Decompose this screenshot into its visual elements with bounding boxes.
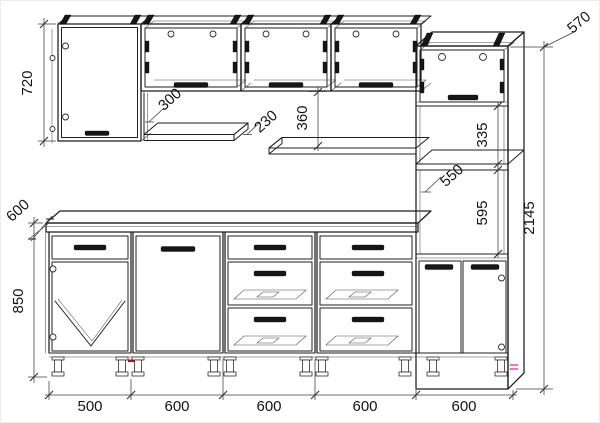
kitchen-elevation-drawing: 720 300 230 360 570 335 550 595 bbox=[1, 1, 600, 423]
drawer-handle bbox=[352, 271, 384, 276]
hinge-cup-icon bbox=[480, 54, 487, 61]
dim-base-height-value: 850 bbox=[10, 288, 27, 313]
drawing-canvas: 720 300 230 360 570 335 550 595 bbox=[0, 0, 600, 423]
wall-shelf-short bbox=[144, 123, 248, 141]
mounting-bracket-icon bbox=[60, 15, 71, 24]
dimension-apron-height: 360 bbox=[294, 87, 326, 151]
cabinet-door bbox=[419, 261, 461, 353]
dim-wall-height-value: 720 bbox=[19, 70, 36, 95]
dim-oven-niche-value: 595 bbox=[474, 200, 491, 225]
dim-apron-height-value: 360 bbox=[294, 105, 311, 130]
worktop bbox=[46, 211, 431, 232]
dim-width-1-value: 500 bbox=[77, 398, 102, 415]
drawer-front bbox=[228, 262, 312, 305]
dim-width-5-value: 600 bbox=[451, 398, 476, 415]
drawer-handle bbox=[254, 271, 286, 276]
dim-shelf-depth-value: 230 bbox=[251, 107, 281, 136]
hinge-cup-icon bbox=[393, 31, 399, 37]
wall-cabinet-flip-2 bbox=[241, 15, 341, 91]
dimension-unit-widths: 500 600 600 600 600 bbox=[45, 359, 517, 415]
tall-cabinet bbox=[416, 32, 524, 389]
flip-door-opening bbox=[420, 50, 504, 102]
door-handle bbox=[85, 131, 109, 136]
hinge-icon bbox=[499, 344, 505, 350]
cabinet-door bbox=[463, 261, 506, 353]
dimension-worktop-depth: 600 bbox=[3, 196, 54, 241]
wall-cabinet-left bbox=[50, 15, 151, 143]
door-handle bbox=[471, 265, 499, 270]
base-cabinet-drawers-2 bbox=[317, 232, 416, 353]
dimension-upper-niche-height: 335 bbox=[474, 102, 502, 168]
shelf-pin-hole bbox=[50, 127, 55, 132]
cabinet-door bbox=[136, 236, 220, 351]
dim-total-height-value: 2145 bbox=[521, 201, 538, 234]
door-handle bbox=[425, 265, 453, 270]
base-cabinet-drawers-1 bbox=[225, 232, 315, 353]
dim-wall-depth-value: 300 bbox=[155, 85, 185, 114]
drawer-handle bbox=[254, 245, 286, 250]
hinge-icon bbox=[50, 266, 56, 272]
drawer-handle bbox=[352, 245, 384, 250]
dimension-total-height: 2145 bbox=[516, 41, 553, 395]
drawer-handle bbox=[352, 317, 384, 322]
dim-tall-depth-value: 570 bbox=[564, 8, 594, 37]
hinge-icon bbox=[63, 114, 69, 120]
dimension-oven-niche-height: 595 bbox=[474, 166, 502, 258]
base-cabinet-2 bbox=[133, 232, 223, 353]
dim-niche-width-value: 550 bbox=[437, 161, 467, 190]
door-handle bbox=[174, 83, 208, 88]
hinge-cup-icon bbox=[263, 31, 269, 37]
door-handle bbox=[359, 83, 393, 88]
hinge-cup-icon bbox=[210, 31, 216, 37]
hinge-icon bbox=[50, 334, 56, 340]
dim-width-4-value: 600 bbox=[352, 398, 377, 415]
hinge-icon bbox=[499, 275, 505, 281]
dim-worktop-depth-value: 600 bbox=[3, 196, 33, 225]
wall-cabinet-left-door bbox=[62, 28, 138, 138]
wall-cabinet-flip-1 bbox=[141, 15, 251, 91]
dim-upper-niche-value: 335 bbox=[474, 122, 491, 147]
mounting-bracket-icon bbox=[493, 33, 505, 46]
hinge-icon bbox=[63, 43, 69, 49]
base-cabinet-1 bbox=[46, 232, 132, 353]
hinge-cup-icon bbox=[353, 31, 359, 37]
hinge-cup-icon bbox=[168, 31, 174, 37]
wall-shelf-long bbox=[269, 138, 429, 155]
dimension-niche-width: 550 bbox=[421, 161, 467, 192]
adjustable-feet bbox=[52, 357, 507, 376]
hinge-cup-icon bbox=[439, 54, 446, 61]
drawer-front bbox=[320, 308, 412, 351]
dimension-shelf-depth: 230 bbox=[243, 107, 281, 136]
dimension-tall-depth: 570 bbox=[510, 8, 594, 47]
drawer-handle bbox=[74, 245, 106, 250]
dimension-base-height: 850 bbox=[10, 217, 47, 383]
open-compartment bbox=[52, 262, 128, 351]
dim-width-2-value: 600 bbox=[164, 398, 189, 415]
door-handle bbox=[161, 247, 195, 252]
drawer-front bbox=[320, 262, 412, 305]
drawer-front bbox=[228, 308, 312, 351]
drawer-handle bbox=[254, 317, 286, 322]
door-handle bbox=[448, 95, 478, 100]
dim-width-3-value: 600 bbox=[256, 398, 281, 415]
door-handle bbox=[269, 83, 303, 88]
shelf-pin-hole bbox=[50, 56, 55, 61]
hinge-cup-icon bbox=[303, 31, 309, 37]
